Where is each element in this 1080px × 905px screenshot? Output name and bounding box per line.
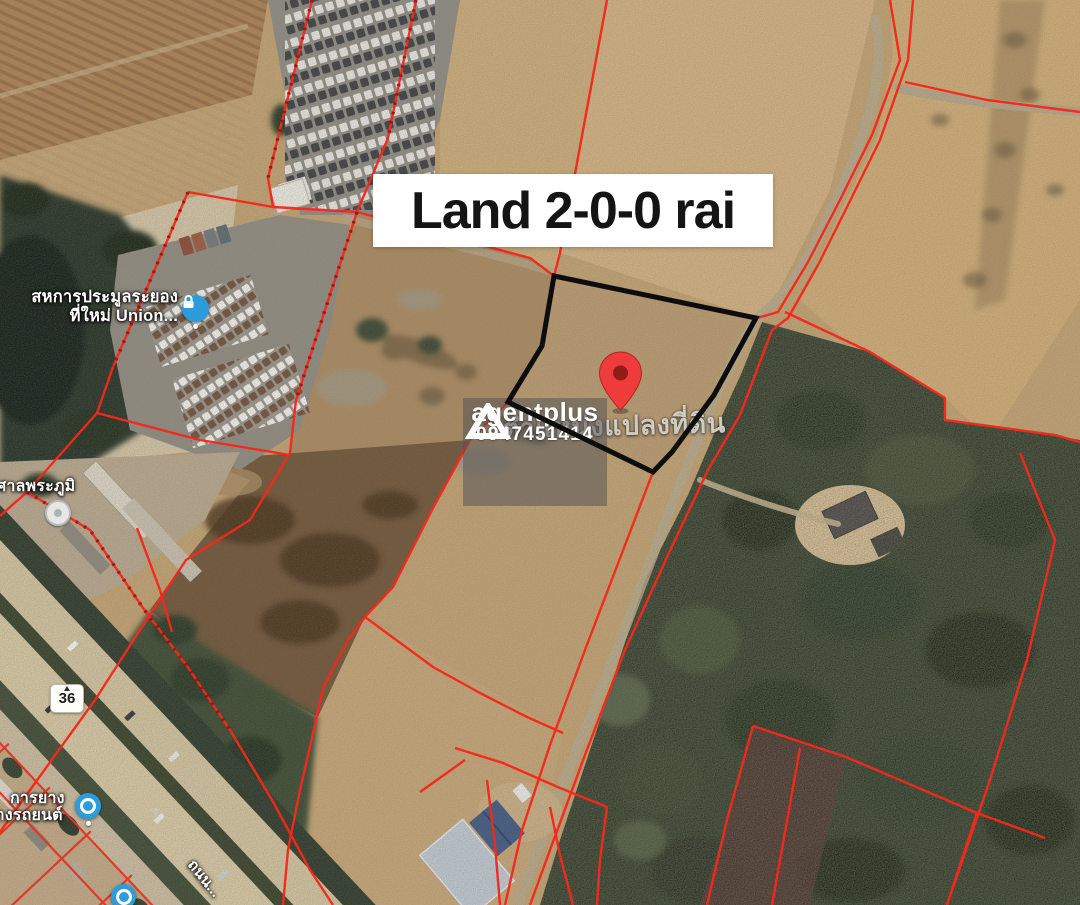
land-listing-image: ตำแหน่งแปลงที่ดิน agentplus 0947451414 ส… xyxy=(0,0,1080,905)
shield-emblem xyxy=(64,686,70,691)
tire-poi-icon xyxy=(75,793,101,819)
shrine-poi-icon xyxy=(45,500,71,526)
title-banner: Land 2-0-0 rai xyxy=(373,174,773,247)
label-tire-line2: ยางรถยนต์ xyxy=(0,806,63,825)
agentplus-logo-icon xyxy=(463,403,513,439)
title-text: Land 2-0-0 rai xyxy=(411,181,735,241)
shield-number: 36 xyxy=(59,690,76,707)
label-auction-line2: ที่ใหม่ Union... xyxy=(70,307,178,325)
route-36-shield: 36 xyxy=(50,684,84,713)
label-auction-line1: สหการประมูลระยอง xyxy=(31,288,178,306)
watermark: agentplus 0947451414 xyxy=(463,398,607,506)
bottom-poi-icon xyxy=(111,884,136,905)
auction-poi-lock-icon xyxy=(182,295,209,322)
label-auction: สหการประมูลระยอง ที่ใหม่ Union... xyxy=(0,288,178,326)
label-shrine: ศาลพระภูมิ xyxy=(0,477,75,496)
